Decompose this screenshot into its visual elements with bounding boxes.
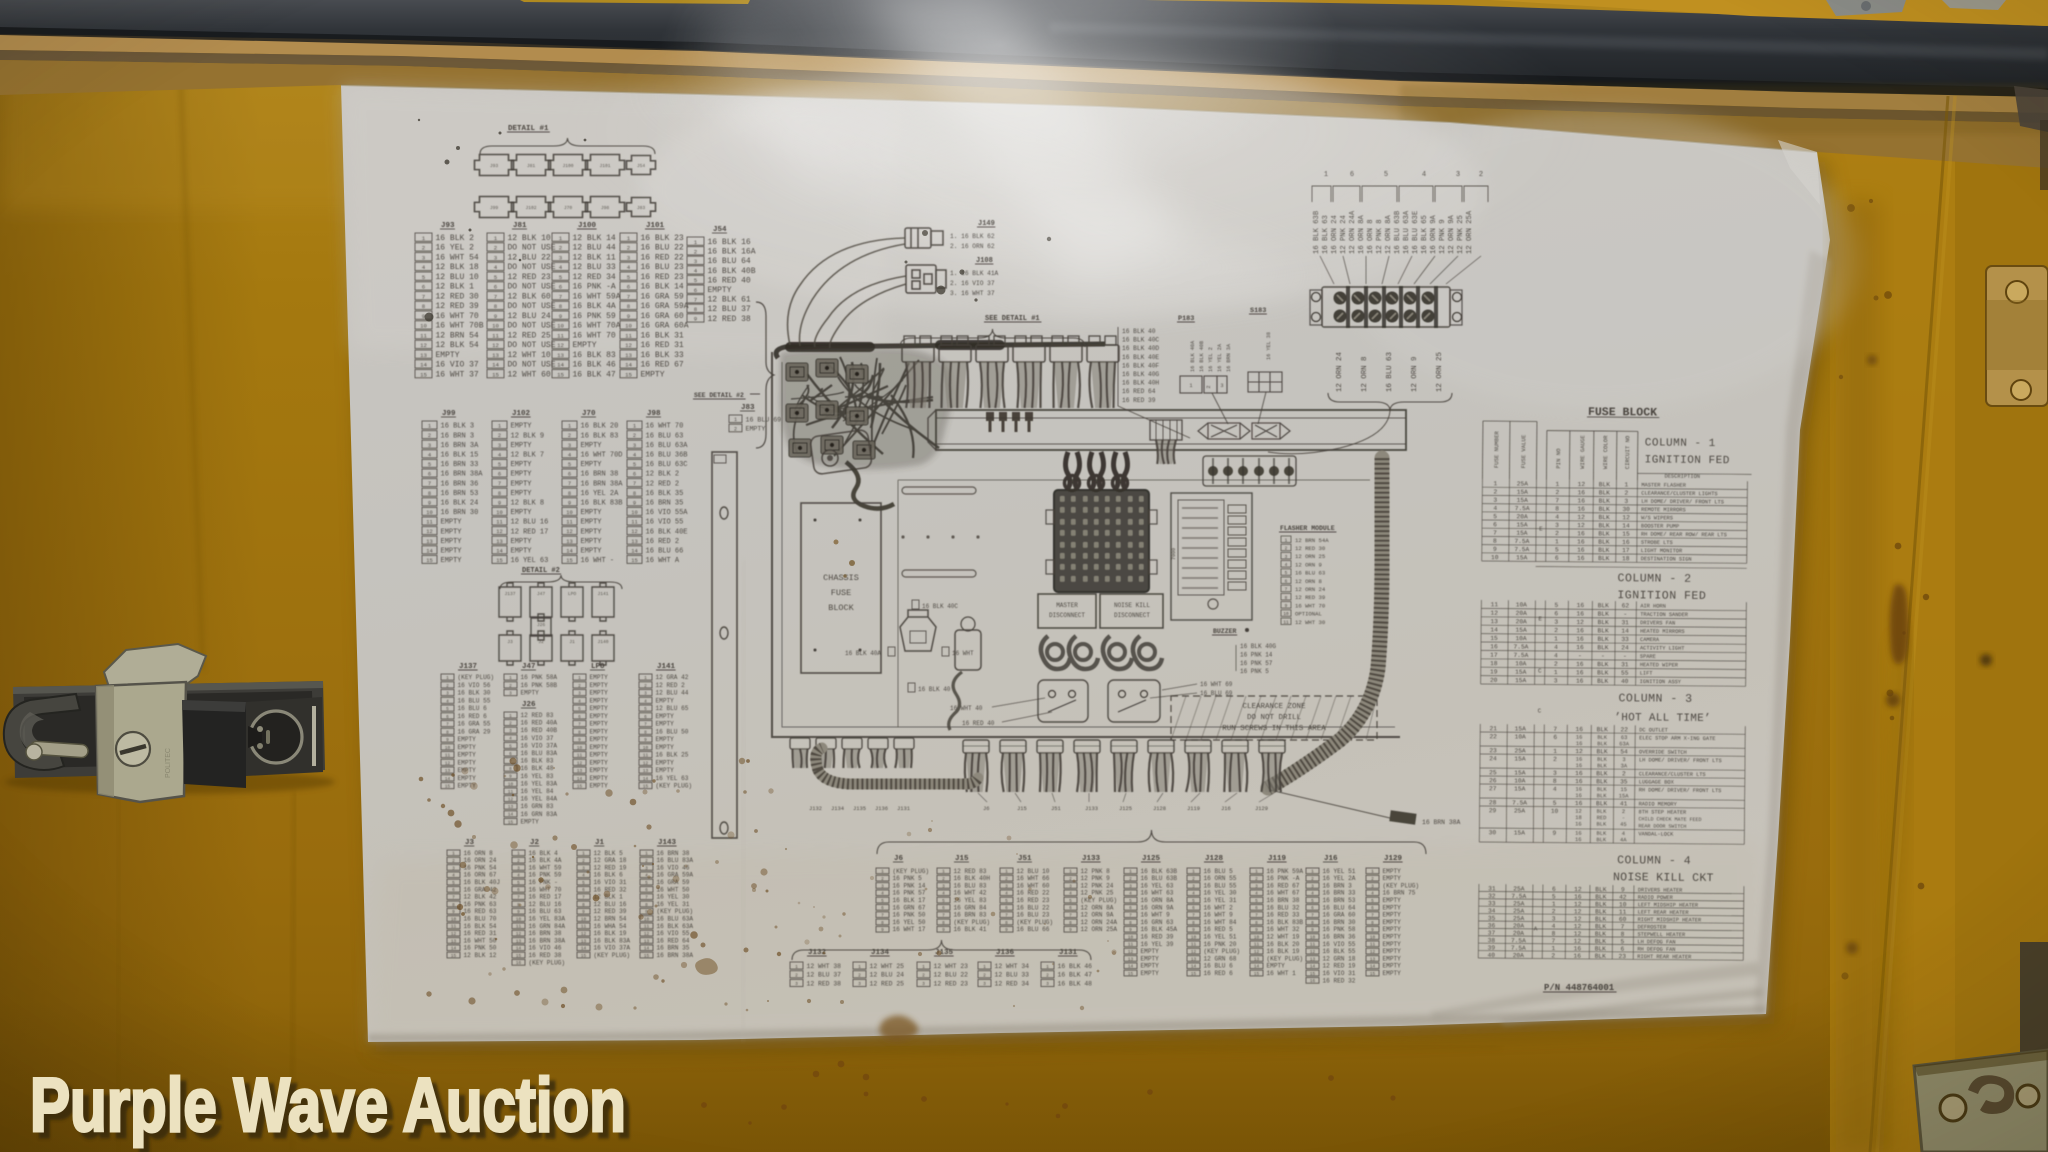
svg-text:Purple Wave Auction: Purple Wave Auction xyxy=(30,1062,626,1147)
